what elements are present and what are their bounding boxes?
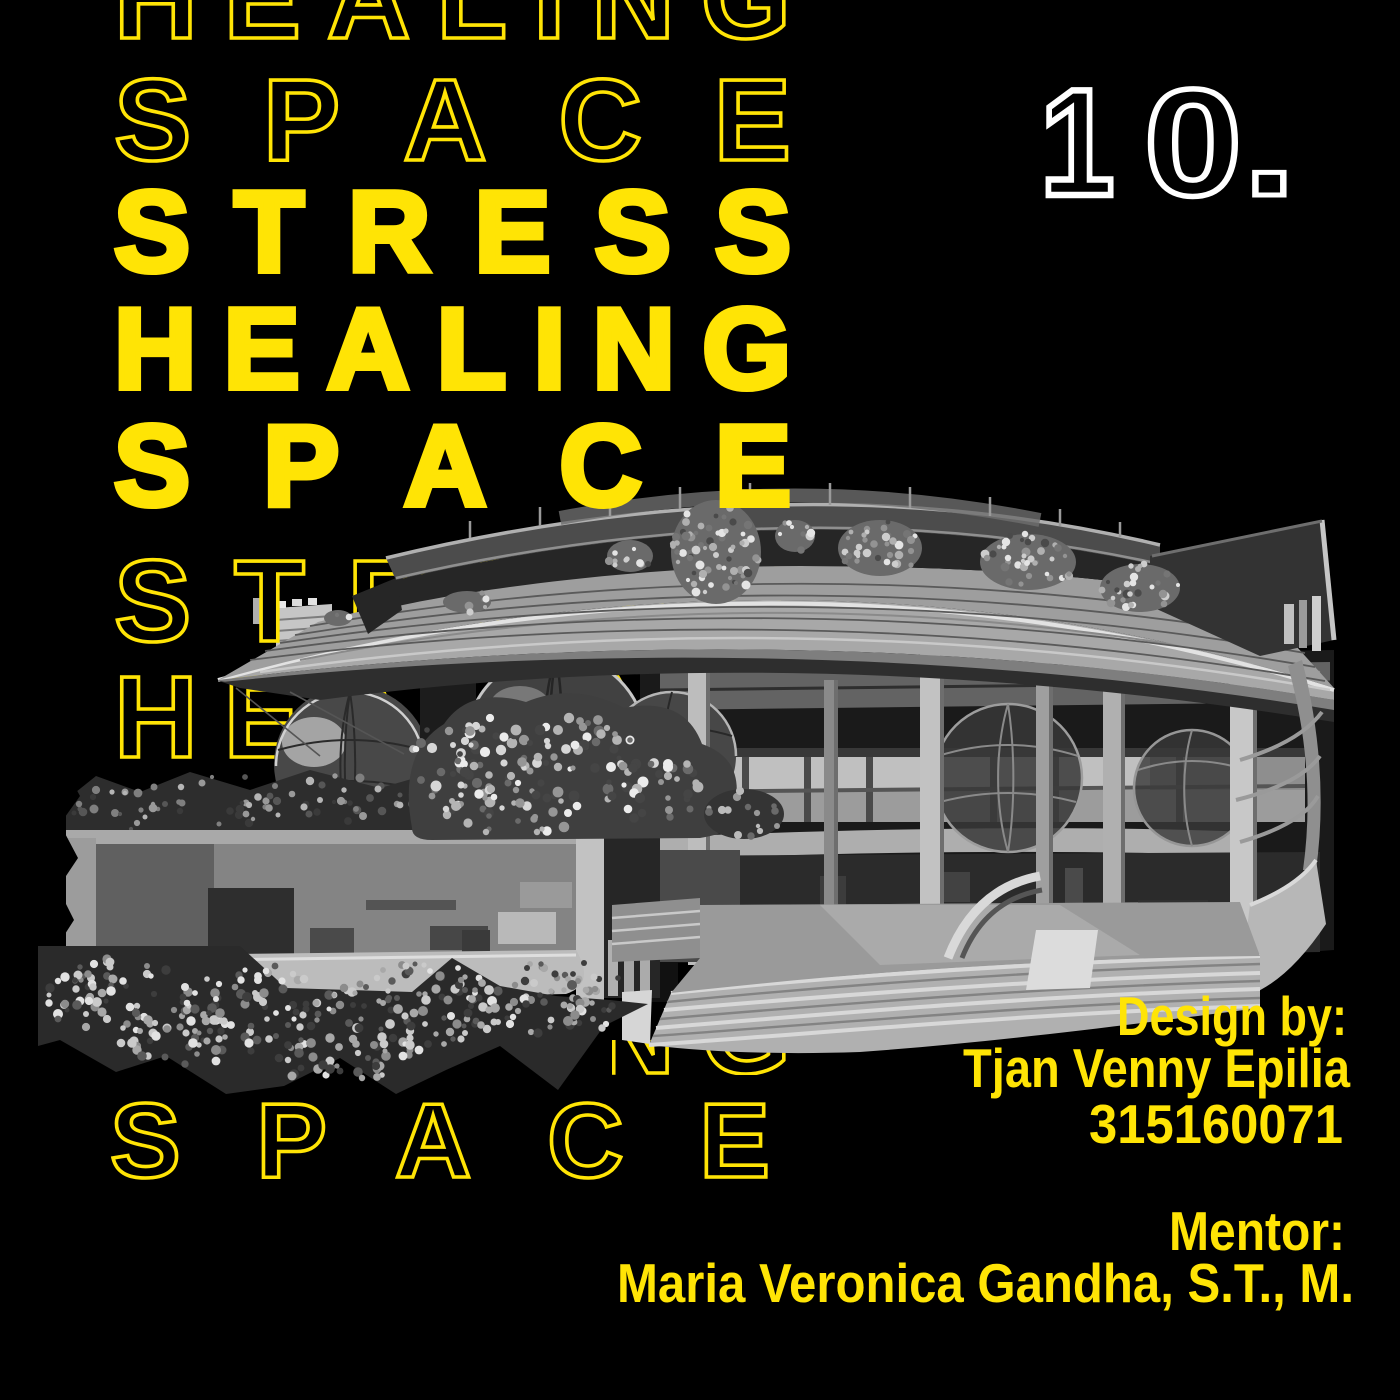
svg-text:1: 1 — [1040, 58, 1114, 228]
svg-text:315160071: 315160071 — [1089, 1093, 1343, 1155]
svg-text:Maria Veronica Gandha, S.T., M: Maria Veronica Gandha, S.T., M. — [617, 1252, 1354, 1314]
svg-text:Tjan Venny Epilia: Tjan Venny Epilia — [963, 1037, 1350, 1099]
svg-text:.: . — [1242, 58, 1297, 228]
svg-text:0: 0 — [1144, 57, 1242, 227]
